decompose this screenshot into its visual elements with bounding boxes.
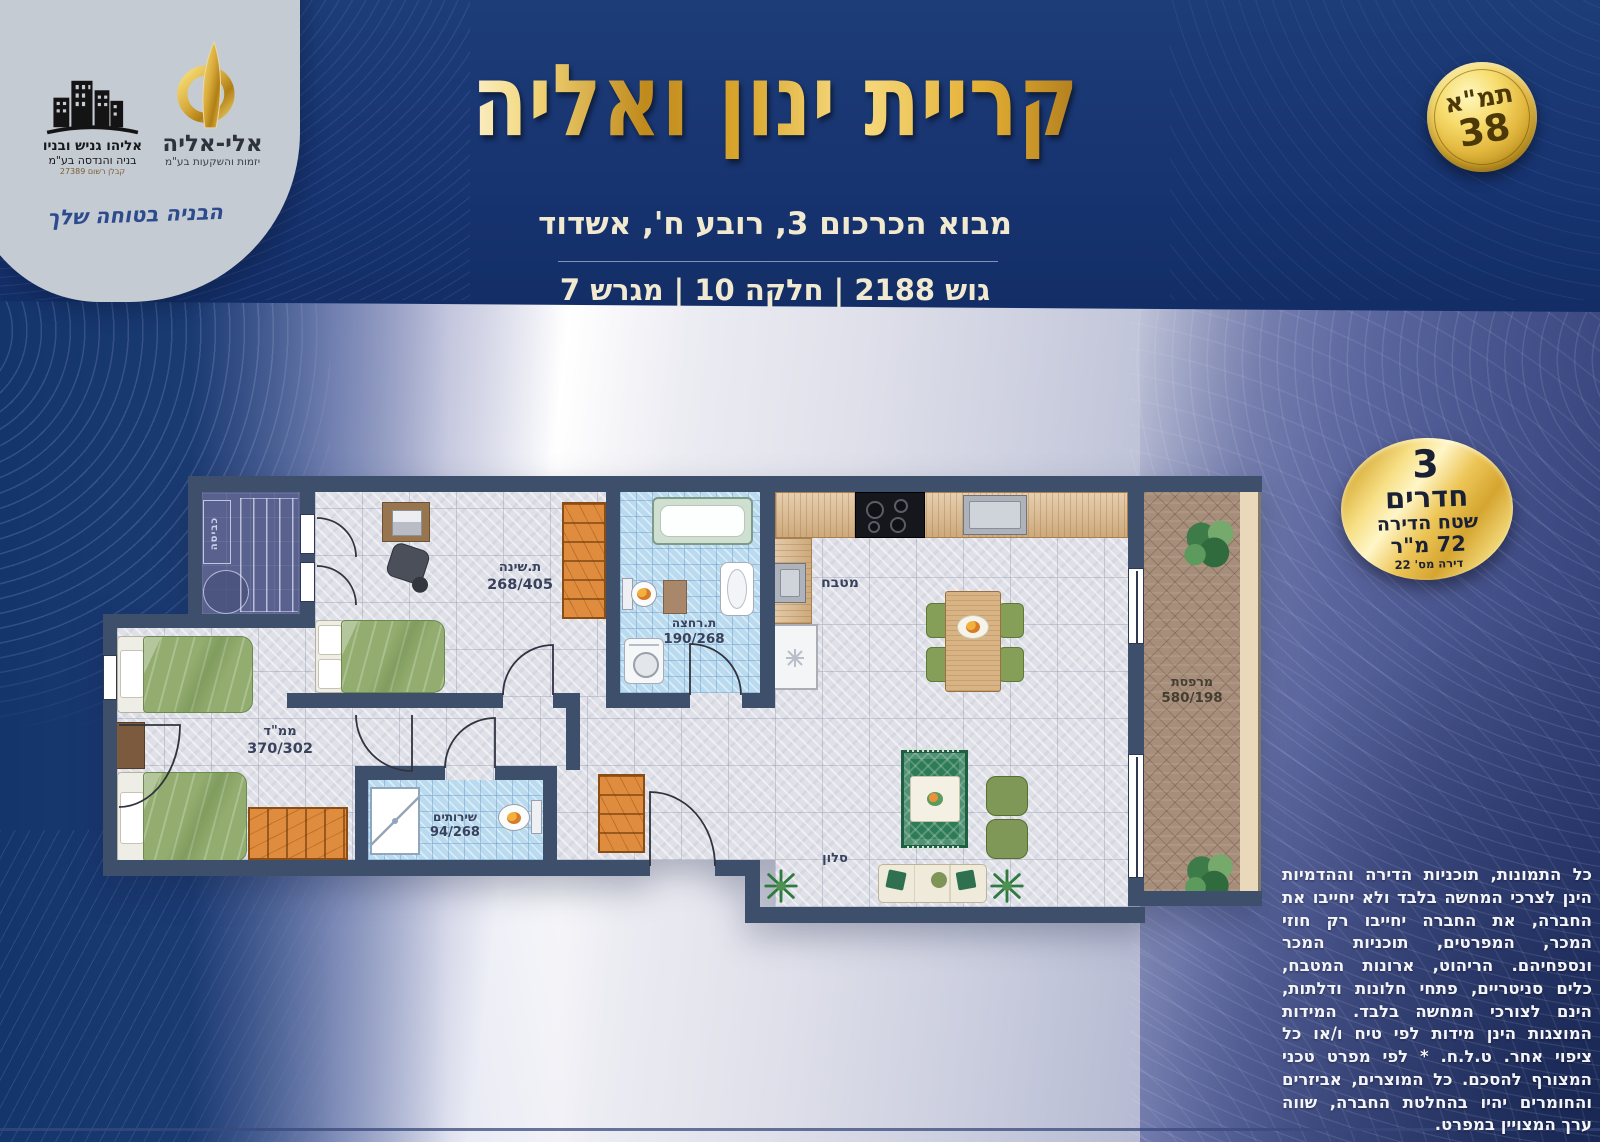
developer-name: אלי-אליה — [155, 132, 270, 156]
builder-license: קבלן רשום 27389 — [5, 167, 180, 176]
parcel-info: גוש 2188 | חלקה 10 | מגרש 7 — [480, 273, 1070, 307]
disclaimer-text: כל התמונות, תוכניות הדירה וההדמיות הינן … — [1282, 864, 1592, 1137]
tama38-badge: תמ"א 38 — [1427, 62, 1537, 172]
floor-plan: ת.שינה 268/405 ת.רחצה 190/268 מטבח ממ"ד … — [100, 474, 1262, 936]
flyer-page: אליהו גניש ובניו בניה והנדסה בע"מ קבלן ר… — [0, 0, 1600, 1142]
developer-logo-text: אלי-אליה יזמות והשקעות בע"מ — [155, 132, 270, 168]
builder-name: אליהו גניש ובניו — [5, 138, 180, 154]
builder-logo-text: אליהו גניש ובניו בניה והנדסה בע"מ קבלן ר… — [5, 138, 180, 176]
builder-logo-icon — [45, 70, 140, 138]
unit-number: דירה מס' 22 — [1394, 556, 1463, 573]
tama38-badge-text: תמ"א 38 — [1418, 53, 1545, 180]
builder-subtitle: בניה והנדסה בע"מ — [5, 154, 180, 167]
slogan-text: הבניה בטוחה שלך — [10, 199, 261, 232]
area-value: 72 מ"ר — [1390, 532, 1466, 558]
project-address: מבוא הכרכום 3, רובע ח', אשדוד — [480, 206, 1070, 242]
header-divider — [558, 261, 998, 262]
rooms-word: חדרים — [1385, 481, 1469, 514]
tama-number: 38 — [1456, 107, 1513, 152]
developer-logo-icon — [175, 40, 247, 132]
door-arcs — [100, 474, 1262, 936]
developer-subtitle: יזמות והשקעות בע"מ — [155, 156, 270, 168]
project-title: קריית ינון ואליה — [451, 38, 1099, 163]
rooms-count: 3 — [1412, 446, 1440, 483]
